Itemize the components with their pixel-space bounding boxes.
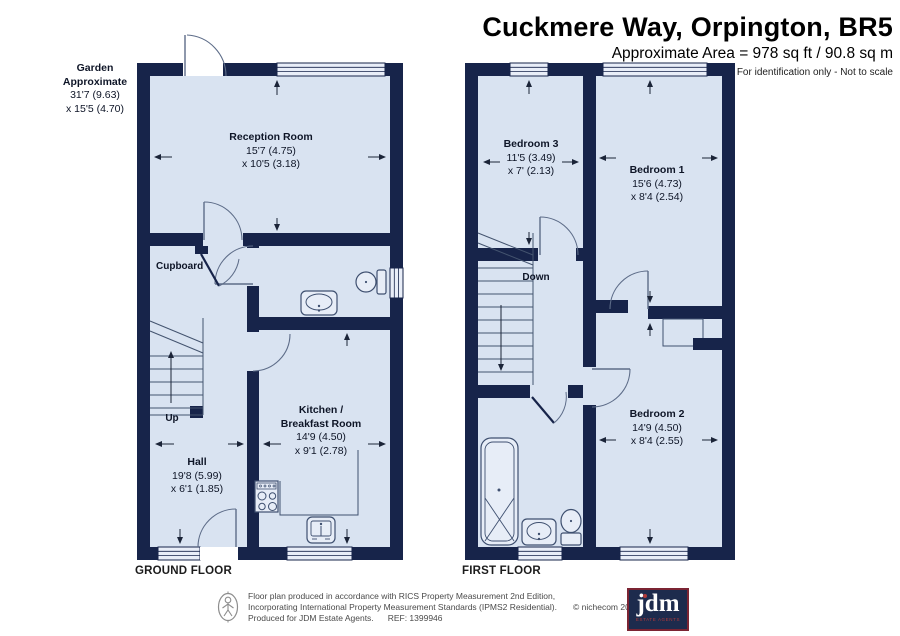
footer: Floor plan produced in accordance with R… — [216, 591, 642, 624]
footer-line2: Incorporating International Property Mea… — [248, 602, 557, 613]
ground-floor-title: GROUND FLOOR — [135, 565, 232, 577]
room-label-kitchen: Kitchen / Breakfast Room 14'9 (4.50) x 9… — [281, 404, 362, 458]
area-line: Approximate Area = 978 sq ft / 90.8 sq m — [482, 45, 893, 63]
bathtub — [481, 438, 518, 545]
garden-label: Garden Approximate 31'7 (9.63) x 15'5 (4… — [63, 62, 127, 116]
bathroom-sink — [522, 519, 556, 545]
page-title: Cuckmere Way, Orpington, BR5 — [482, 13, 893, 42]
bedroom2-window — [620, 547, 688, 560]
kitchen-sink — [307, 517, 335, 543]
wc-sink — [301, 291, 337, 315]
room-label-bedroom3: Bedroom 3 11'5 (3.49) x 7' (2.13) — [504, 138, 559, 179]
room-label-hall: Hall 19'8 (5.99) x 6'1 (1.85) — [171, 456, 223, 497]
jdm-logo-subtitle: ESTATE AGENTS — [629, 617, 687, 622]
hall-window — [158, 547, 200, 560]
kitchen-window — [287, 547, 352, 560]
bathroom-window — [518, 547, 562, 560]
stairs-up-label: Up — [165, 413, 178, 424]
footer-line1: Floor plan produced in accordance with R… — [248, 591, 642, 602]
first-floor-title: FIRST FLOOR — [462, 565, 541, 577]
reference-number: REF: 1399946 — [388, 613, 443, 624]
jdm-logo-dot — [643, 594, 647, 598]
nichecom-person-icon — [216, 591, 240, 623]
jdm-logo-text: jdm — [629, 591, 687, 617]
footer-line3: Produced for JDM Estate Agents. — [248, 613, 374, 624]
room-label-bedroom2: Bedroom 2 14'9 (4.50) x 8'4 (2.55) — [630, 408, 685, 449]
room-label-bedroom1: Bedroom 1 15'6 (4.73) x 8'4 (2.54) — [630, 164, 685, 205]
room-label-reception: Reception Room 15'7 (4.75) x 10'5 (3.18) — [229, 131, 312, 172]
wc-toilet — [356, 270, 386, 294]
jdm-logo: jdm ESTATE AGENTS — [627, 588, 689, 631]
floorplan-drawing — [0, 0, 900, 636]
bathroom-toilet — [561, 510, 581, 546]
footer-text: Floor plan produced in accordance with R… — [248, 591, 642, 624]
stairs-down-label: Down — [522, 272, 549, 283]
garden-door — [183, 35, 226, 76]
wc-window — [390, 268, 403, 298]
reception-window — [277, 63, 385, 76]
floorplan-page: Cuckmere Way, Orpington, BR5 Approximate… — [0, 0, 900, 636]
disclaimer: For identification only - Not to scale — [482, 67, 893, 78]
hob — [255, 481, 278, 512]
header: Cuckmere Way, Orpington, BR5 Approximate… — [482, 13, 893, 78]
room-label-cupboard: Cupboard — [156, 261, 203, 272]
